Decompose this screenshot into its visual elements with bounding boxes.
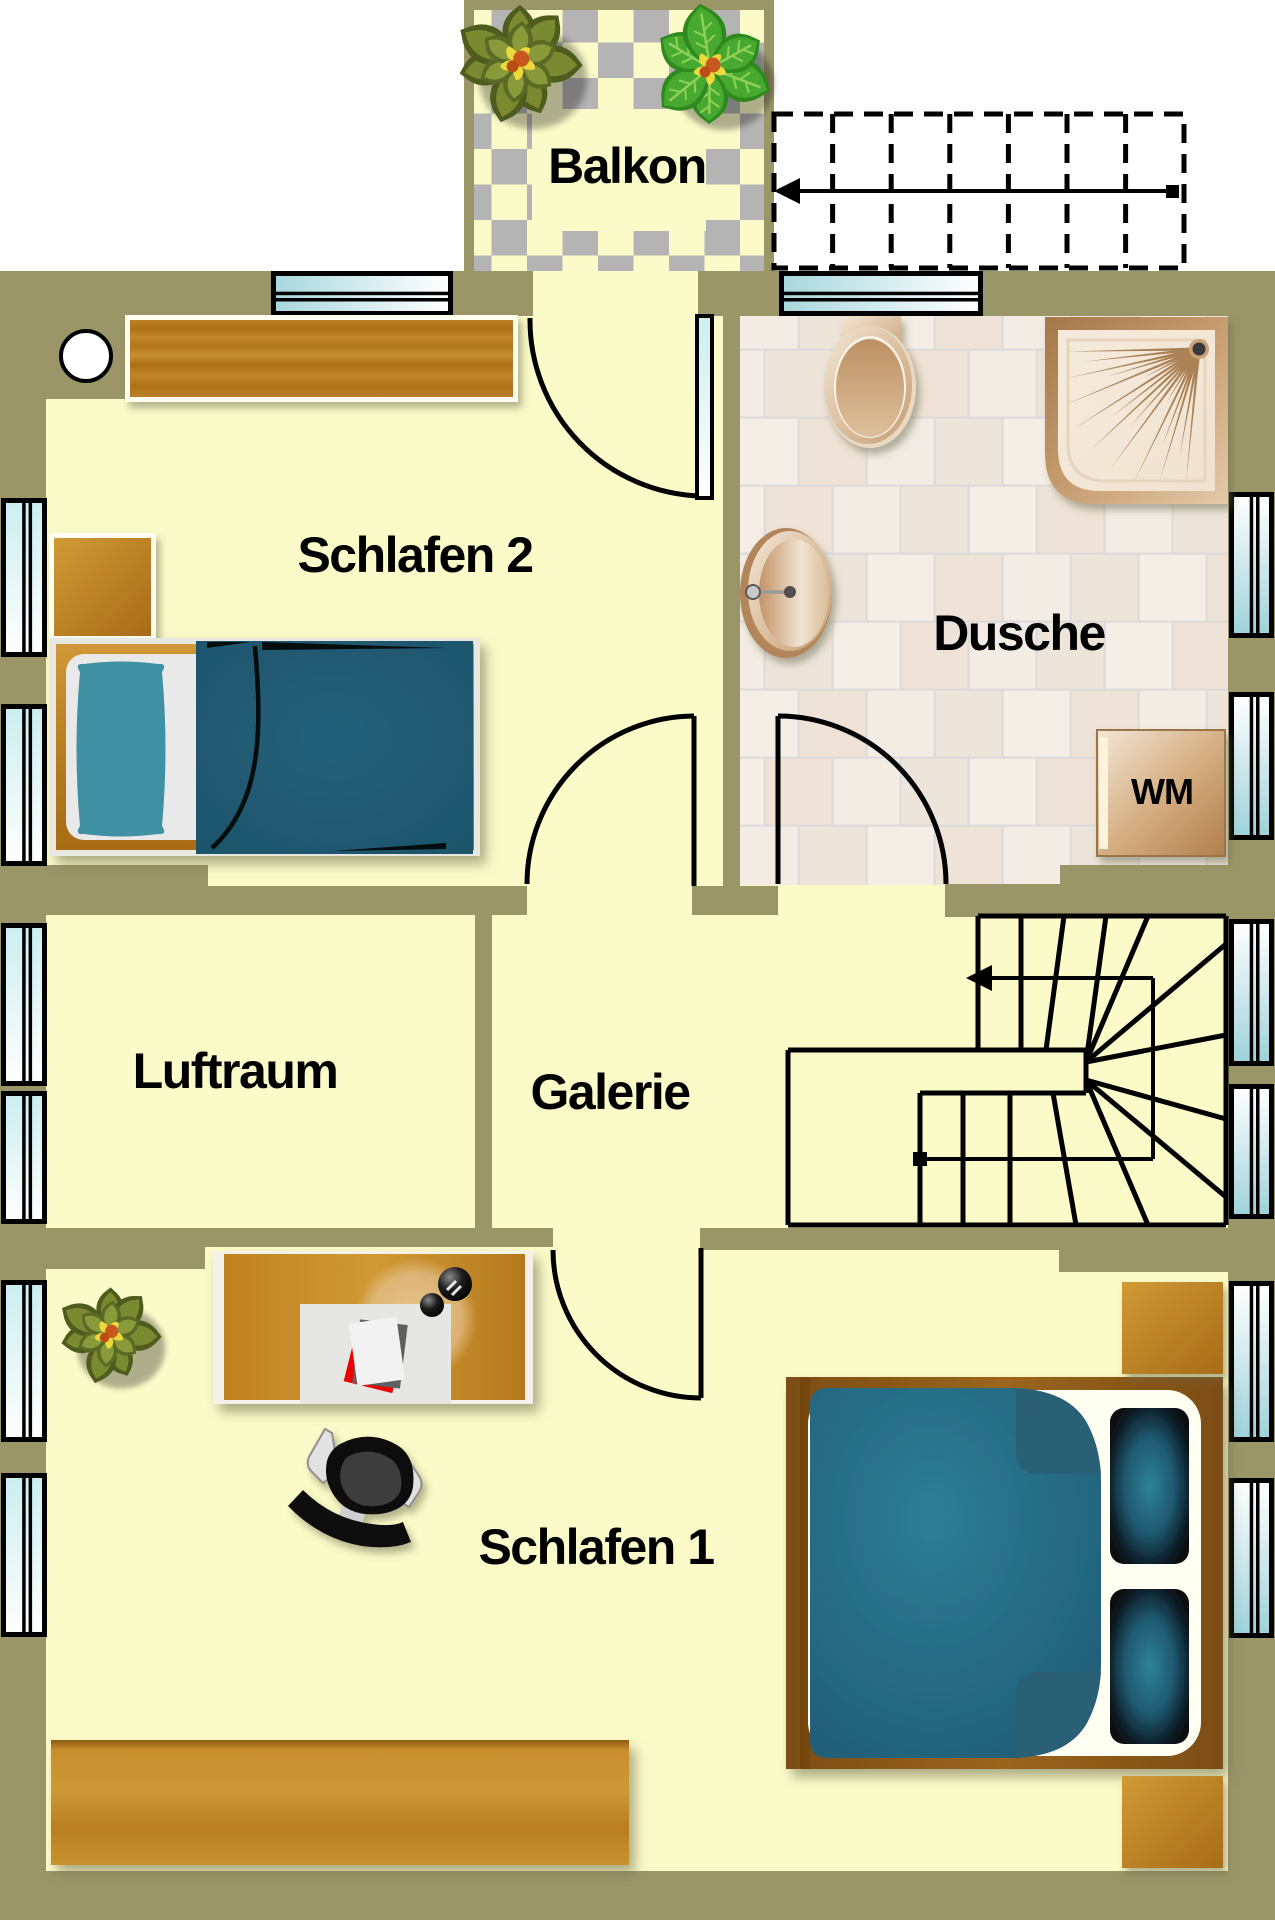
svg-text:Schlafen 1: Schlafen 1 <box>478 1519 714 1575</box>
svg-text:Schlafen 2: Schlafen 2 <box>297 527 532 583</box>
svg-text:Balkon: Balkon <box>548 138 706 194</box>
svg-text:WM: WM <box>1131 771 1193 812</box>
svg-text:Luftraum: Luftraum <box>133 1043 338 1099</box>
svg-text:Dusche: Dusche <box>933 605 1105 661</box>
svg-text:Galerie: Galerie <box>530 1064 690 1120</box>
